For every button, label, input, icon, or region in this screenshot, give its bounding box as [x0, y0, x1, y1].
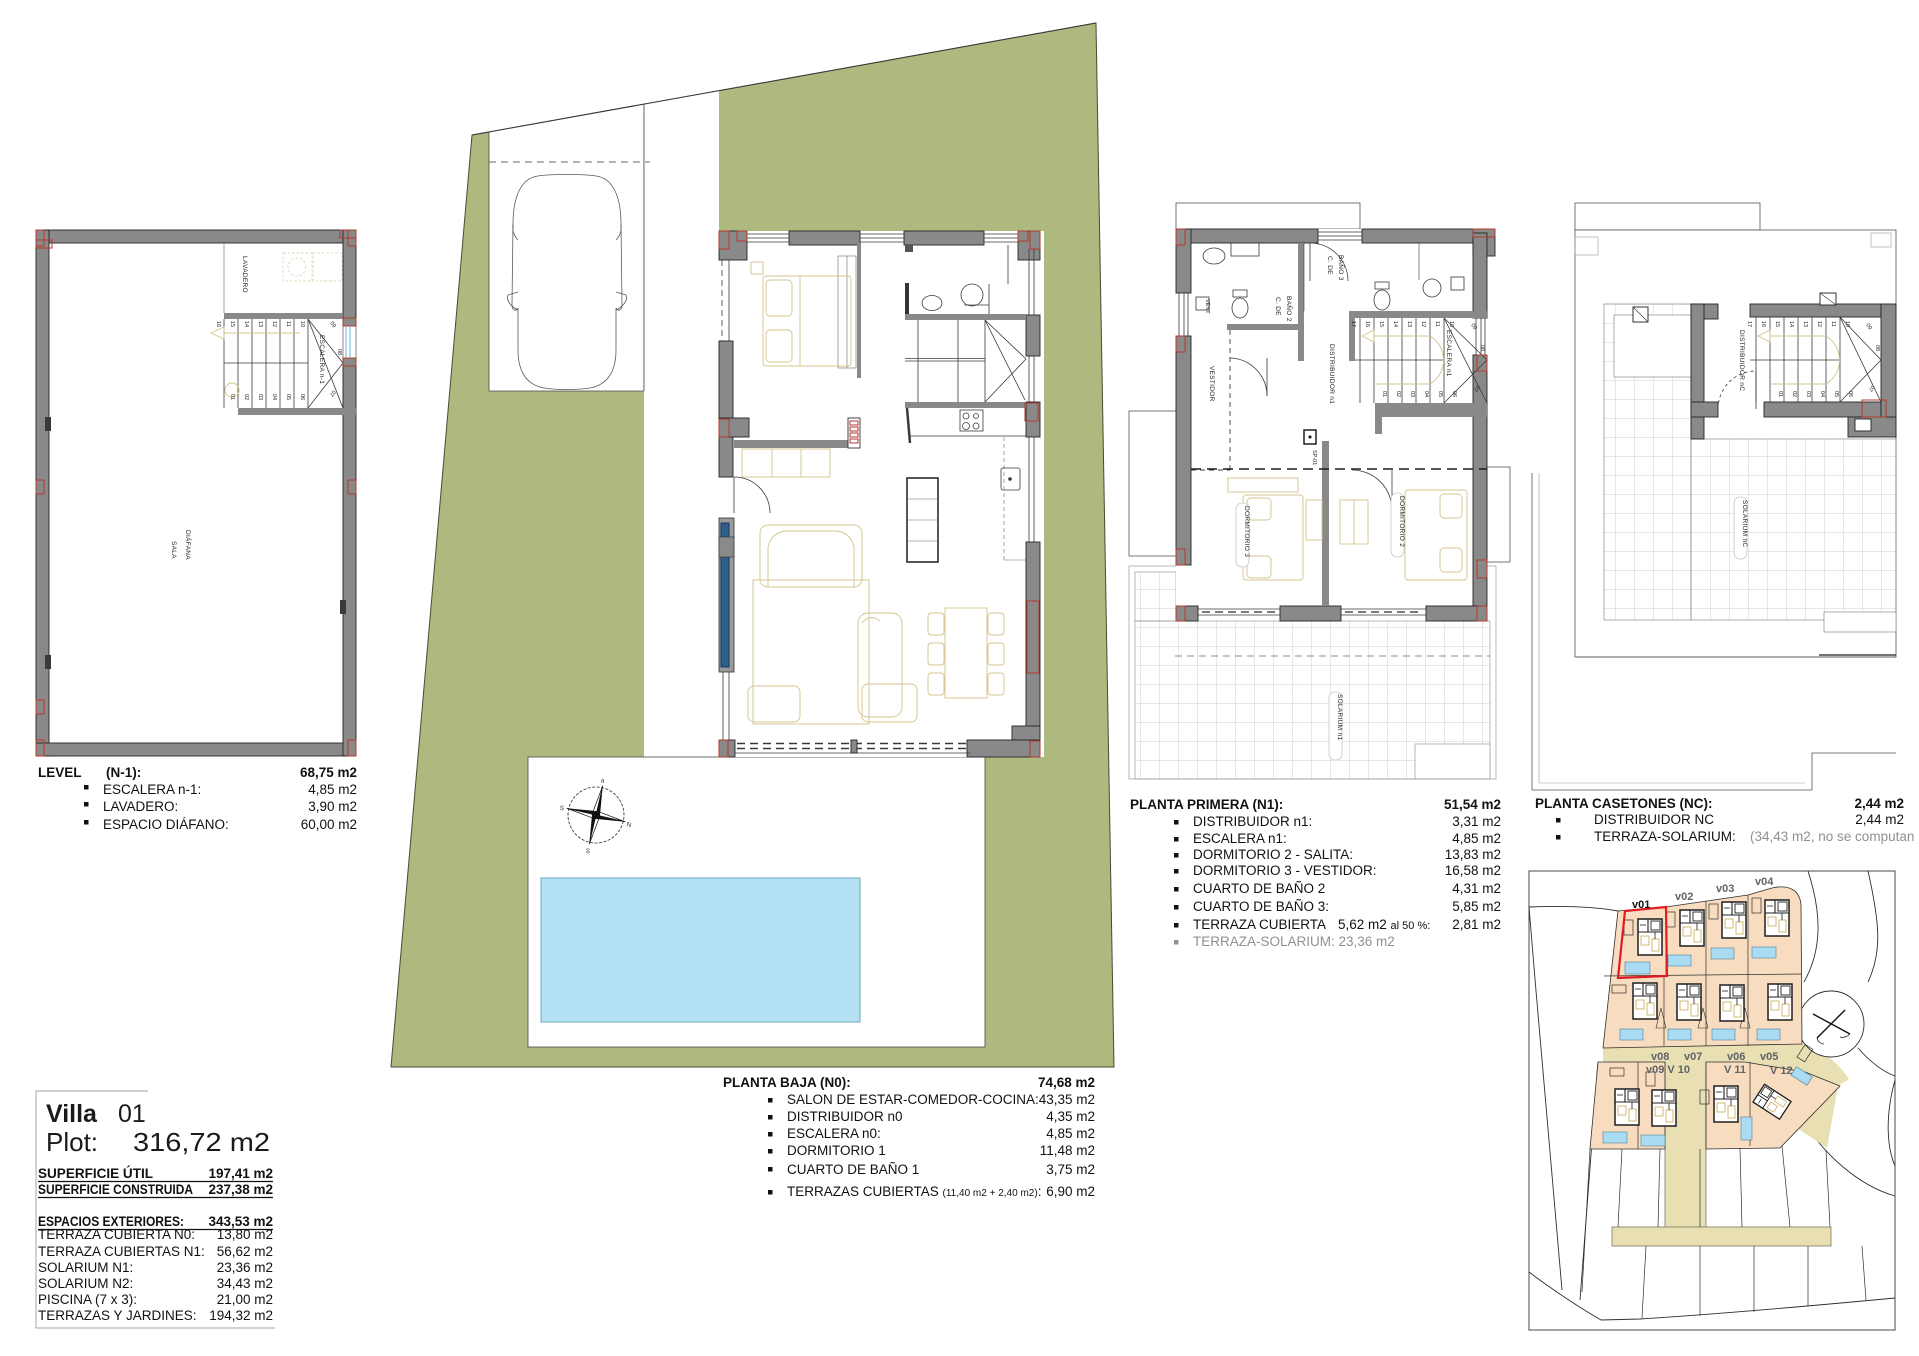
svg-text:11: 11: [1434, 321, 1440, 327]
svg-text:02: 02: [1791, 391, 1797, 397]
svg-text:08: 08: [336, 349, 342, 355]
svg-text:13: 13: [1802, 321, 1808, 327]
svg-text:Plot:: Plot:: [46, 1127, 98, 1157]
svg-text:51,54 m2: 51,54 m2: [1444, 797, 1501, 812]
svg-text:BAÑO 3: BAÑO 3: [1337, 255, 1346, 281]
svg-text:PLANTA BAJA (N0):: PLANTA BAJA (N0):: [723, 1075, 851, 1090]
svg-text:DORMITORIO 2: DORMITORIO 2: [1398, 496, 1405, 547]
svg-text:DORMITORIO 2 - SALITA:: DORMITORIO 2 - SALITA:: [1193, 847, 1353, 862]
svg-text:16: 16: [215, 321, 221, 327]
svg-text:DISTRIBUIDOR n1: DISTRIBUIDOR n1: [1328, 344, 1335, 404]
svg-text:14: 14: [1788, 321, 1794, 327]
svg-text:5,85 m2: 5,85 m2: [1452, 899, 1501, 914]
svg-text:10: 10: [1844, 321, 1850, 327]
svg-text:DISTRIBUIDOR n1:: DISTRIBUIDOR n1:: [1193, 814, 1312, 829]
svg-text:SOLARIUM n1: SOLARIUM n1: [1336, 694, 1343, 740]
svg-text:05: 05: [1833, 391, 1839, 397]
svg-text:v03: v03: [1716, 883, 1734, 895]
svg-text:v06: v06: [1727, 1051, 1745, 1063]
svg-text:v08: v08: [1651, 1051, 1669, 1063]
svg-text:11: 11: [1830, 321, 1836, 327]
svg-text:194,32 m2: 194,32 m2: [209, 1308, 273, 1323]
svg-text:4,35 m2: 4,35 m2: [1046, 1109, 1095, 1124]
svg-text:LAVADERO: LAVADERO: [241, 256, 248, 293]
svg-text:SOLARIUM nC: SOLARIUM nC: [1741, 500, 1748, 547]
svg-text:60,00 m2: 60,00 m2: [301, 817, 357, 832]
svg-text:01: 01: [229, 394, 235, 400]
svg-text:ESCALERA n1:: ESCALERA n1:: [1193, 831, 1287, 846]
svg-text:6,90 m2: 6,90 m2: [1046, 1184, 1095, 1199]
svg-text:17: 17: [1350, 321, 1356, 327]
svg-text:06: 06: [299, 394, 305, 400]
svg-text:04: 04: [1819, 391, 1825, 397]
svg-text:2,81 m2: 2,81 m2: [1452, 917, 1501, 932]
svg-text:TERRAZA-SOLARIUM: 23,36 m2: TERRAZA-SOLARIUM: 23,36 m2: [1193, 934, 1395, 949]
svg-text:21,00 m2: 21,00 m2: [217, 1292, 273, 1307]
svg-text:03: 03: [257, 394, 263, 400]
svg-text:SALON DE ESTAR-COMEDOR-COCINA:: SALON DE ESTAR-COMEDOR-COCINA:: [787, 1092, 1039, 1107]
svg-text:ESCALERA n-1: ESCALERA n-1: [318, 335, 325, 384]
svg-text:05: 05: [285, 394, 291, 400]
svg-text:VESTIDOR: VESTIDOR: [1208, 366, 1215, 402]
svg-text:BAÑO 2: BAÑO 2: [1285, 296, 1294, 322]
svg-text:CUARTO DE BAÑO 3:: CUARTO DE BAÑO 3:: [1193, 899, 1329, 914]
svg-text:3,31 m2: 3,31 m2: [1452, 814, 1501, 829]
svg-text:05: 05: [1437, 391, 1443, 397]
svg-text:CUARTO DE BAÑO 1: CUARTO DE BAÑO 1: [787, 1162, 919, 1177]
svg-text:11: 11: [285, 321, 291, 327]
svg-text:ESCALERA n1: ESCALERA n1: [1445, 330, 1452, 377]
svg-text:237,38 m2: 237,38 m2: [208, 1182, 273, 1197]
svg-text:16: 16: [1760, 321, 1766, 327]
svg-text:43,35 m2: 43,35 m2: [1039, 1092, 1095, 1107]
svg-text:4,31 m2: 4,31 m2: [1452, 881, 1501, 896]
svg-text:V 12: V 12: [1770, 1065, 1793, 1077]
svg-text:3,75 m2: 3,75 m2: [1046, 1162, 1095, 1177]
svg-text:v09 V 10: v09 V 10: [1646, 1064, 1690, 1076]
svg-text:12: 12: [1420, 321, 1426, 327]
svg-text:13: 13: [1406, 321, 1412, 327]
svg-text:ESCALERA n0:: ESCALERA n0:: [787, 1126, 881, 1141]
svg-text:15: 15: [229, 321, 235, 327]
svg-text:C. DE: C. DE: [1274, 297, 1281, 316]
svg-text:DORMITORIO 3 - VESTIDOR:: DORMITORIO 3 - VESTIDOR:: [1193, 863, 1377, 878]
svg-text:SALA: SALA: [170, 541, 177, 559]
svg-text:34,43 m2: 34,43 m2: [217, 1276, 273, 1291]
svg-text:74,68 m2: 74,68 m2: [1038, 1075, 1095, 1090]
svg-text:11,48 m2: 11,48 m2: [1040, 1143, 1095, 1158]
svg-text:13,80 m2: 13,80 m2: [217, 1227, 273, 1242]
svg-text:06: 06: [1847, 391, 1853, 397]
svg-text:08: 08: [1479, 345, 1485, 351]
svg-text:TERRAZA-SOLARIUM:: TERRAZA-SOLARIUM:: [1594, 829, 1736, 844]
svg-text:v02: v02: [1675, 891, 1693, 903]
svg-text:10: 10: [1448, 321, 1454, 327]
svg-text:v01: v01: [1632, 899, 1650, 911]
svg-text:TERRAZA CUBIERTA: TERRAZA CUBIERTA: [1193, 917, 1326, 932]
svg-text:15: 15: [1378, 321, 1384, 327]
svg-text:(34,43 m2, no se computan: (34,43 m2, no se computan: [1750, 829, 1914, 844]
svg-text:TERRAZA CUBIERTA N0:: TERRAZA CUBIERTA N0:: [38, 1227, 195, 1242]
svg-text:12: 12: [1816, 321, 1822, 327]
svg-text:TERRAZAS Y JARDINES:: TERRAZAS Y JARDINES:: [38, 1308, 197, 1323]
svg-text:3,90 m2: 3,90 m2: [308, 799, 357, 814]
svg-text:13,83 m2: 13,83 m2: [1445, 847, 1501, 862]
svg-text:DISTRIBUIDOR n0: DISTRIBUIDOR n0: [787, 1109, 903, 1124]
svg-text:DORMITORIO 3: DORMITORIO 3: [1243, 506, 1250, 557]
svg-text:68,75 m2: 68,75 m2: [300, 765, 357, 780]
svg-text:04: 04: [271, 394, 277, 400]
svg-text:V 11: V 11: [1724, 1064, 1746, 1076]
svg-text:DISTRIBUIDOR nC: DISTRIBUIDOR nC: [1738, 330, 1745, 391]
svg-text:03: 03: [1409, 391, 1415, 397]
svg-text:14: 14: [1392, 321, 1398, 327]
svg-text:TERRAZA CUBIERTAS N1:: TERRAZA CUBIERTAS N1:: [38, 1244, 205, 1259]
svg-text:12: 12: [271, 321, 277, 327]
svg-text:4,85 m2: 4,85 m2: [1452, 831, 1501, 846]
svg-text:2,44 m2: 2,44 m2: [1854, 796, 1904, 811]
svg-text:SOLARIUM N2:: SOLARIUM N2:: [38, 1276, 133, 1291]
svg-text:v04: v04: [1755, 876, 1774, 888]
svg-text:DISTRIBUIDOR NC: DISTRIBUIDOR NC: [1594, 812, 1714, 827]
svg-text:4,85 m2: 4,85 m2: [1046, 1126, 1095, 1141]
svg-text:56,62 m2: 56,62 m2: [217, 1244, 273, 1259]
svg-text:VENT: VENT: [1204, 299, 1210, 314]
svg-text:SUPERFICIE CONSTRUIDA: SUPERFICIE CONSTRUIDA: [38, 1182, 193, 1197]
svg-text:16: 16: [1364, 321, 1370, 327]
svg-text:4,85 m2: 4,85 m2: [308, 782, 357, 797]
svg-text:SUPERFICIE ÚTIL: SUPERFICIE ÚTIL: [38, 1166, 153, 1181]
svg-text:DORMITORIO 1: DORMITORIO 1: [787, 1143, 886, 1158]
svg-text:v07: v07: [1684, 1051, 1702, 1063]
svg-text:316,72 m2: 316,72 m2: [133, 1127, 270, 1157]
svg-text:03: 03: [1805, 391, 1811, 397]
svg-text:197,41 m2: 197,41 m2: [208, 1166, 273, 1181]
svg-text:5,62 m2 al 50 %:: 5,62 m2 al 50 %:: [1338, 917, 1430, 932]
svg-text:01: 01: [1381, 391, 1387, 397]
svg-text:LAVADERO:: LAVADERO:: [103, 799, 178, 814]
svg-text:CUARTO DE BAÑO 2: CUARTO DE BAÑO 2: [1193, 881, 1325, 896]
svg-text:23,36 m2: 23,36 m2: [217, 1260, 273, 1275]
svg-text:C. DE: C. DE: [1326, 256, 1333, 275]
svg-text:16,58 m2: 16,58 m2: [1445, 863, 1501, 878]
svg-text:PISCINA (7 x 3):: PISCINA (7 x 3):: [38, 1292, 137, 1307]
svg-text:v05: v05: [1760, 1051, 1778, 1063]
svg-text:01: 01: [1777, 391, 1783, 397]
svg-text:ESCALERA n-1:: ESCALERA n-1:: [103, 782, 201, 797]
svg-text:2,44 m2: 2,44 m2: [1855, 812, 1904, 827]
svg-text:14: 14: [243, 321, 249, 327]
svg-text:17: 17: [1746, 321, 1752, 327]
svg-text:08: 08: [1874, 345, 1880, 351]
svg-text:SOLARIUM N1:: SOLARIUM N1:: [38, 1260, 133, 1275]
svg-text:PLANTA PRIMERA (N1):: PLANTA PRIMERA (N1):: [1130, 797, 1283, 812]
svg-text:(N-1):: (N-1):: [106, 765, 141, 780]
svg-text:DIÁFANA: DIÁFANA: [184, 530, 193, 560]
svg-text:04: 04: [1423, 391, 1429, 397]
svg-text:02: 02: [243, 394, 249, 400]
svg-text:06: 06: [1451, 391, 1457, 397]
svg-text:01: 01: [118, 1100, 146, 1128]
svg-text:ESPACIO DIÁFANO:: ESPACIO DIÁFANO:: [103, 817, 229, 832]
svg-text:LEVEL: LEVEL: [38, 765, 82, 780]
svg-text:13: 13: [257, 321, 263, 327]
svg-text:10: 10: [299, 321, 305, 327]
svg-text:15: 15: [1774, 321, 1780, 327]
svg-text:02: 02: [1395, 391, 1401, 397]
svg-text:PLANTA CASETONES (NC):: PLANTA CASETONES (NC):: [1535, 796, 1713, 811]
svg-text:Villa: Villa: [46, 1100, 98, 1128]
svg-text:SP-01: SP-01: [1311, 450, 1317, 465]
